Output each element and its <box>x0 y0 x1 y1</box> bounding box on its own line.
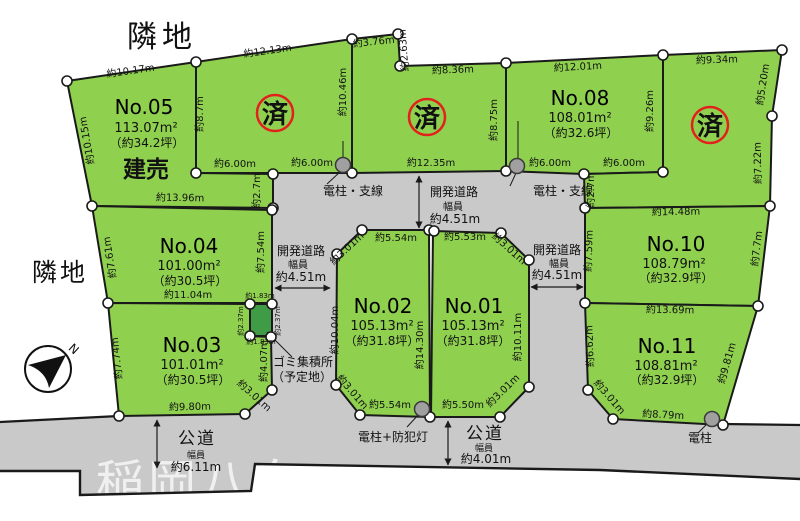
plot-no03-name: No.03 <box>163 333 222 357</box>
pole-light-icon <box>415 402 430 417</box>
site-plan-svg: 稲岡八白 <box>0 0 800 521</box>
garbage-station-area <box>250 304 272 336</box>
plot-no08-area: 108.01m² <box>548 111 611 126</box>
pole-wire-left-icon <box>336 158 351 173</box>
dim: 約2.7m <box>250 173 263 209</box>
dev-road-top-width: 約4.51m <box>430 211 480 226</box>
public-road-left-width: 約6.11m <box>171 459 221 474</box>
plot-no11-area: 108.81m² <box>634 359 697 374</box>
dim: 約10.04m <box>328 306 341 354</box>
pole-label: 電柱 <box>688 430 712 445</box>
sold-stamp-a: 済 <box>262 99 289 130</box>
plot-no10-tsubo: （約32.9坪） <box>639 270 714 285</box>
dim: 約13.96m <box>156 191 205 205</box>
dev-road-left-width: 約4.51m <box>276 269 326 284</box>
pole-right-icon <box>705 412 720 427</box>
dim: 約8.7m <box>193 96 206 132</box>
plot-no10 <box>585 206 770 306</box>
built-for-sale-label: 建売 <box>123 157 169 183</box>
plot-no02-tsubo: （約31.8坪） <box>345 333 420 348</box>
dev-road-left-name: 開発道路 <box>277 243 325 258</box>
north-label: N <box>66 341 82 357</box>
plot-no03-tsubo: （約30.5坪） <box>156 372 231 387</box>
sold-stamp-c: 済 <box>697 111 724 142</box>
dim: 約1.83m <box>245 291 275 300</box>
dim: 約14.48m <box>652 205 701 219</box>
dim: 約5.53m <box>444 230 486 243</box>
plot-no10-area: 108.79m² <box>642 257 705 272</box>
plot-no02-area: 105.13m² <box>350 319 413 334</box>
dev-road-top-name: 開発道路 <box>430 184 478 199</box>
compass: N <box>25 341 82 392</box>
plot-no02-name: No.02 <box>354 294 413 318</box>
plot-no01-area: 105.13m² <box>441 319 504 334</box>
plot-no10-name: No.10 <box>647 232 706 256</box>
dim: 約2.37m <box>236 306 245 336</box>
dev-road-right-name: 開発道路 <box>533 242 581 257</box>
lot-layout-map: 稲岡八白 <box>0 0 800 521</box>
dim: 約12.35m <box>407 156 455 169</box>
plot-no05-area: 113.07m² <box>114 121 177 136</box>
plot-no01-tsubo: （約31.8坪） <box>436 333 511 348</box>
public-road-bottom-name: 公道 <box>466 424 504 444</box>
plot-no08-tsubo: （約32.6坪） <box>544 125 619 140</box>
pole-wire-right-icon <box>510 159 525 174</box>
plot-no03-area: 101.01m² <box>160 358 223 373</box>
dim: 約5.50m <box>442 398 484 411</box>
dim: 約4.07m <box>257 340 270 382</box>
dim: 約6.00m <box>603 156 645 169</box>
dim: 約7.22m <box>751 142 765 184</box>
dev-road-right-width: 約4.51m <box>532 267 582 282</box>
garbage-station-label: ゴミ集積所 <box>273 354 333 369</box>
plot-no08-name: No.08 <box>551 86 610 110</box>
dim: 約7.54m <box>254 231 267 273</box>
dim: 約14.30m <box>413 321 426 369</box>
plot-no01-name: No.01 <box>445 294 504 318</box>
public-road-left-name: 公道 <box>178 429 216 449</box>
dim: 約6.00m <box>291 156 333 169</box>
dim: 約9.26m <box>643 90 656 132</box>
garbage-station-sub-label: （予定地） <box>272 369 332 384</box>
plot-no04-name: No.04 <box>160 234 219 258</box>
sold-stamp-b: 済 <box>414 103 441 134</box>
public-road-bottom-width: 約4.01m <box>461 451 511 466</box>
dim: 約13.69m <box>646 303 695 317</box>
dim: 約11.04m <box>164 288 212 301</box>
pole-light-label: 電柱+防犯灯 <box>358 429 428 444</box>
plot-no04-area: 101.00m² <box>157 259 220 274</box>
dim: 約6.00m <box>529 156 571 169</box>
dim: 約6.00m <box>214 157 256 170</box>
plot-no11-name: No.11 <box>638 334 697 358</box>
plot-no05-name: No.05 <box>115 95 174 119</box>
dim: 約10.46m <box>336 68 349 116</box>
dim: 約5.54m <box>375 231 417 244</box>
dim: 約10.11m <box>511 313 524 361</box>
dim: 約5.54m <box>369 398 411 411</box>
pole-wire-left-label: 電柱・支線 <box>323 183 383 198</box>
pole-wire-right-label: 電柱・支線 <box>533 183 593 198</box>
dim: 約9.80m <box>169 400 211 414</box>
dim: 約8.75m <box>487 99 500 141</box>
neighbor-left-label: 隣地 <box>32 258 88 287</box>
dim: 約2.37m <box>273 306 282 336</box>
dim: 約1.83m <box>246 337 276 346</box>
plot-no11-tsubo: （約32.9坪） <box>630 372 705 387</box>
neighbor-top-label: 隣地 <box>127 20 197 55</box>
plot-no05-tsubo: （約34.2坪） <box>110 135 185 150</box>
plot-no04-tsubo: （約30.5坪） <box>153 273 228 288</box>
